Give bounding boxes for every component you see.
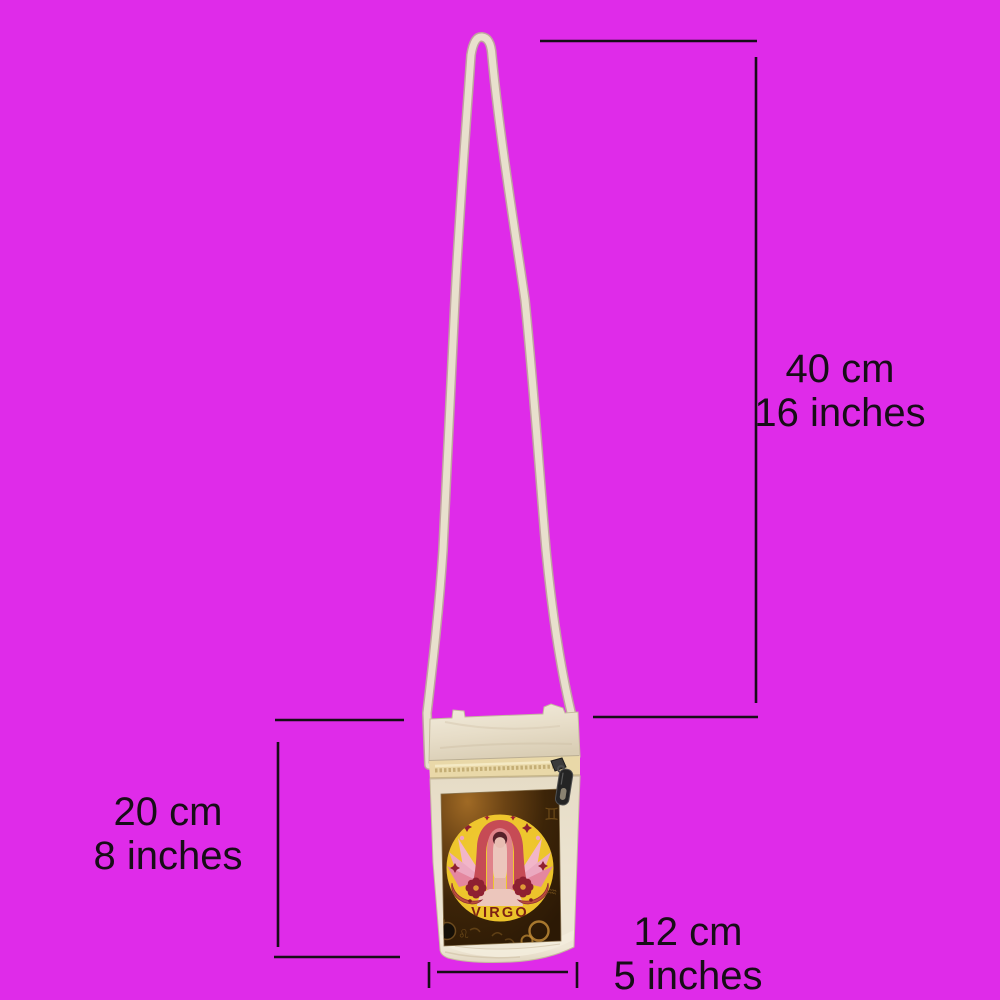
product-photo: ♊ ♌ ♒ (0, 0, 1000, 1000)
height-cm: 20 cm (28, 790, 308, 834)
height-inches: 8 inches (28, 834, 308, 878)
print-panel: ♊ ♌ ♒ (428, 789, 561, 947)
zodiac-circle: VIRGO (447, 815, 554, 922)
width-inches: 5 inches (548, 954, 828, 998)
width-cm: 12 cm (548, 910, 828, 954)
svg-text:♊: ♊ (544, 805, 559, 825)
strap-drop-cm: 40 cm (700, 347, 980, 391)
height-measurement: 20 cm 8 inches (28, 790, 308, 878)
strap-drop-inches: 16 inches (700, 391, 980, 435)
width-measurement: 12 cm 5 inches (548, 910, 828, 998)
strap-drop-measurement: 40 cm 16 inches (700, 347, 980, 435)
shoulder-strap (427, 37, 574, 765)
bag-flap (429, 704, 580, 763)
